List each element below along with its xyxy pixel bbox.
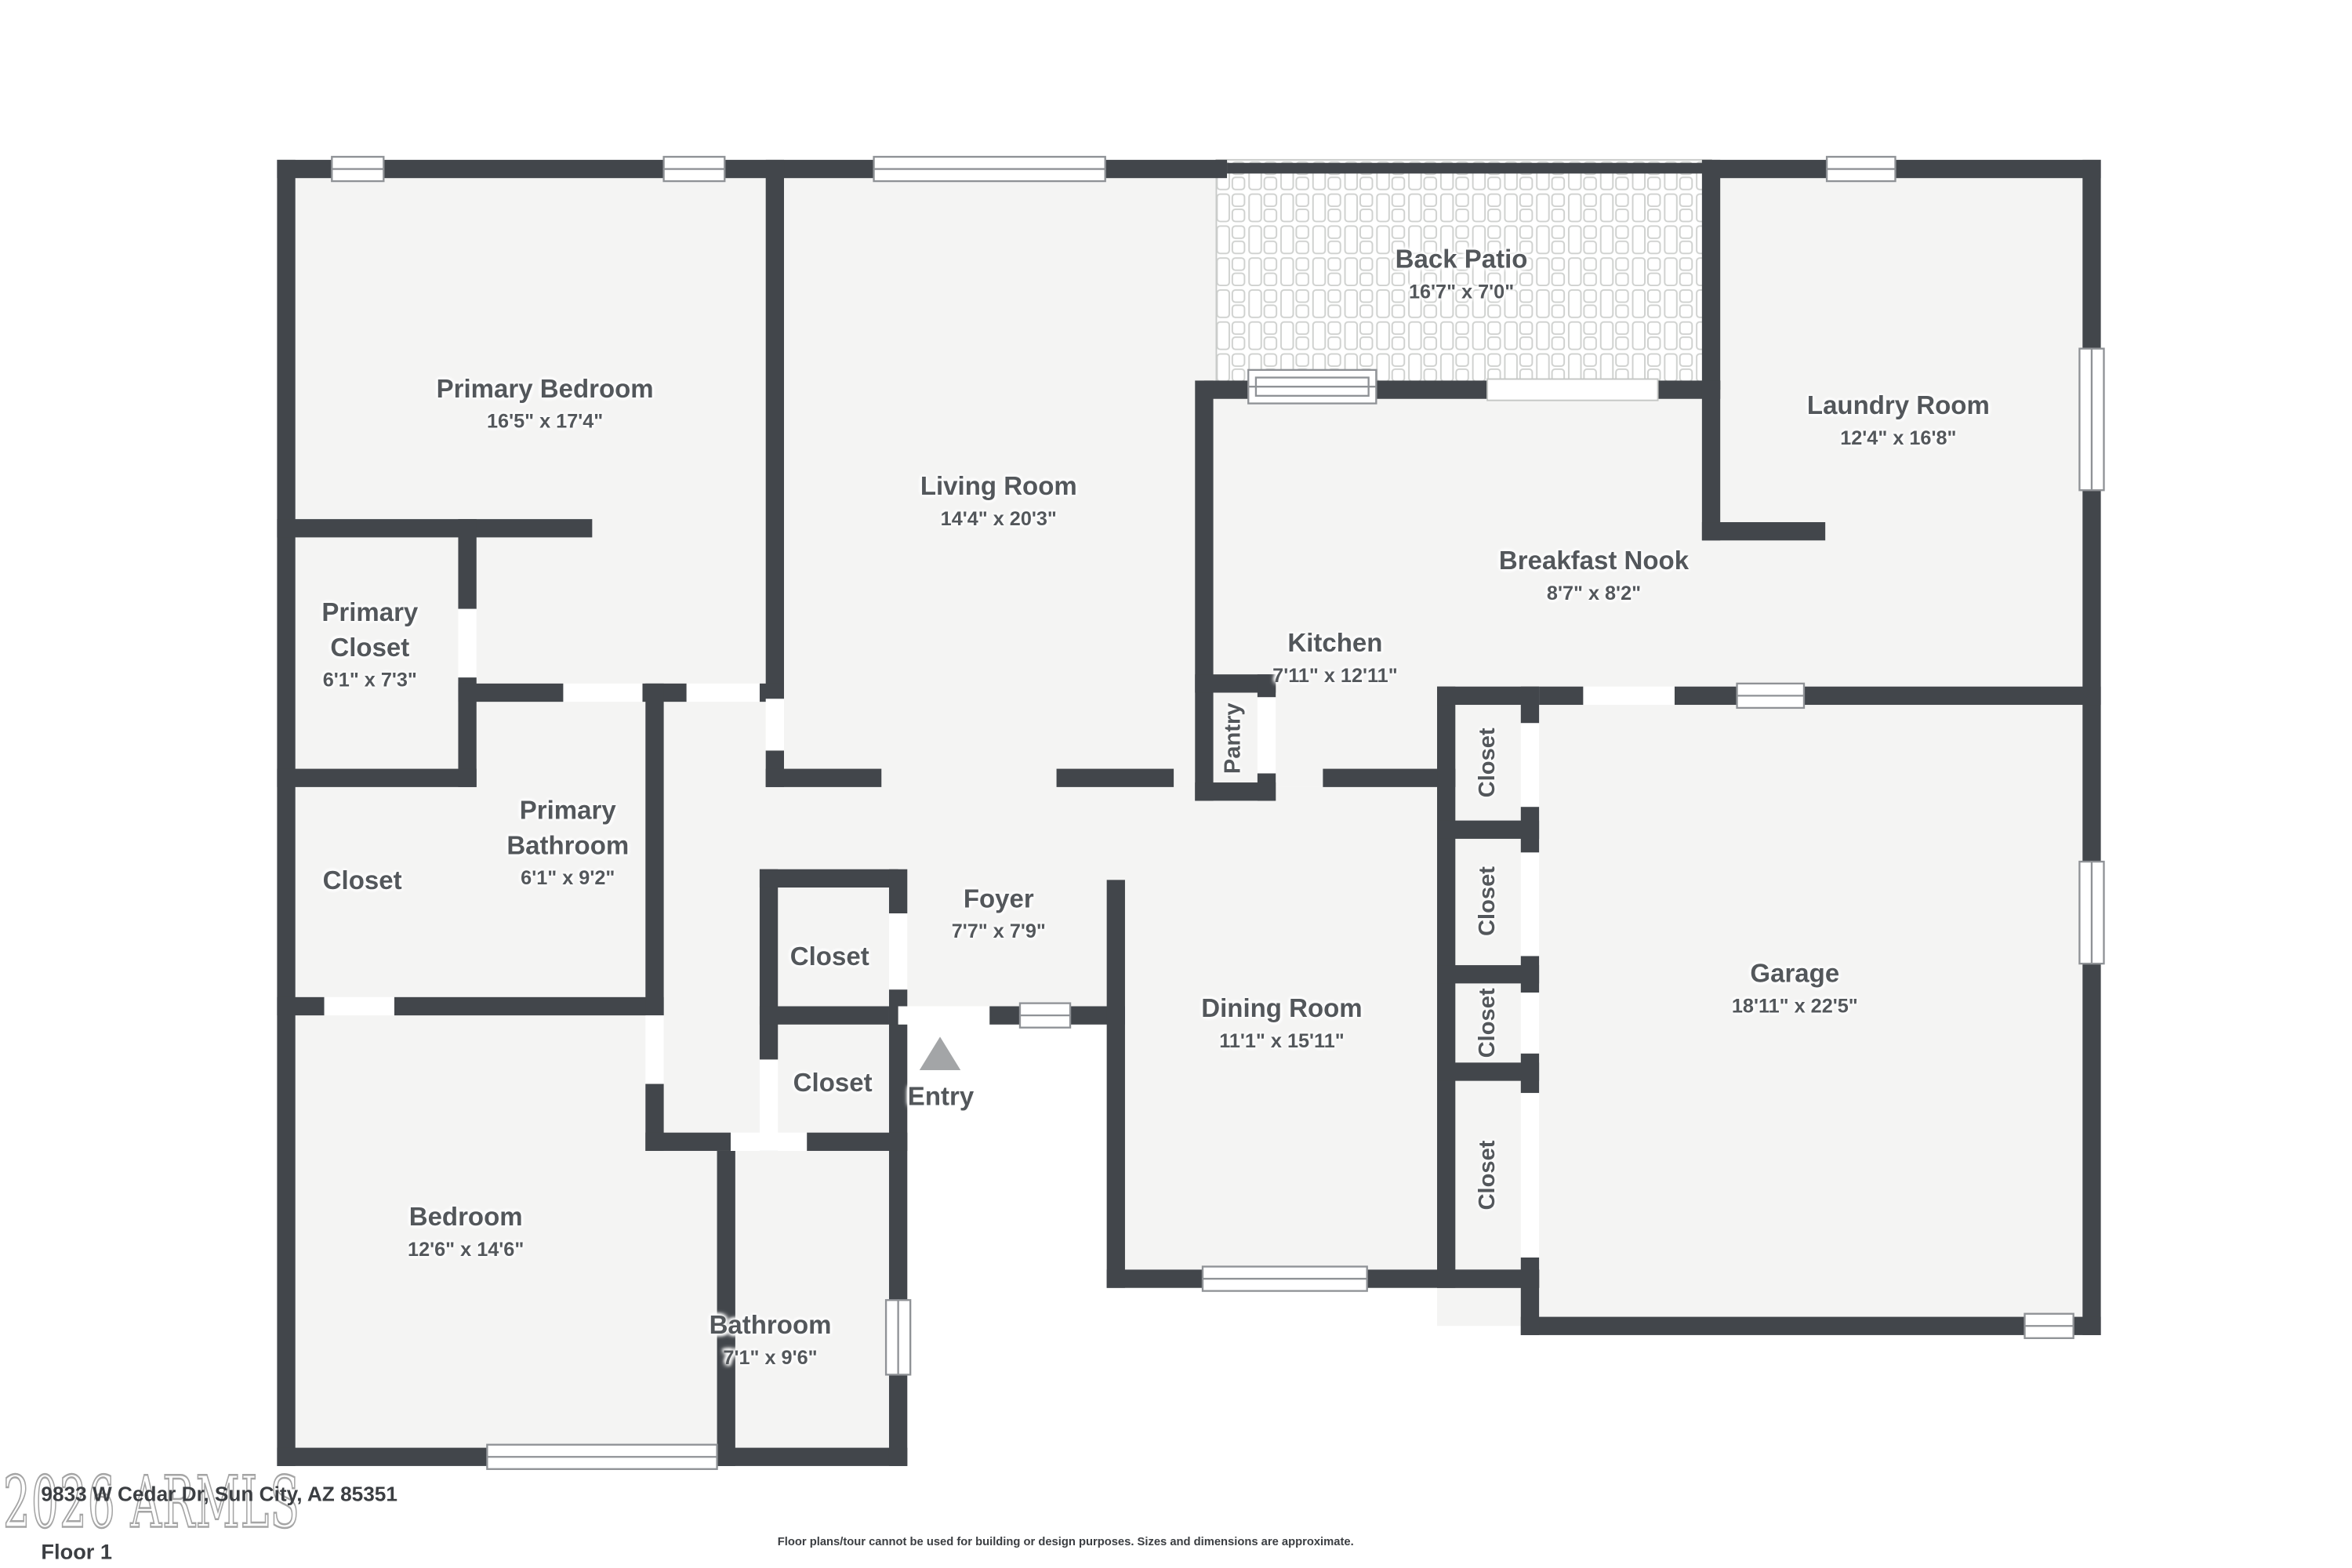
room-label-bathroom: Bathroom 7'1" x 9'6" [710,1309,832,1371]
room-label-foyer: Foyer 7'7" x 7'9" [952,883,1046,945]
patio-slider-door [1248,370,1376,404]
room-label-pantry: Pantry [1220,702,1246,774]
room-label-garage: Garage 18'11" x 22'5" [1732,957,1858,1019]
entry-arrow-icon [920,1036,960,1070]
room-label-closet-col-1: Closet [1475,728,1501,797]
floor-plan-drawing [0,0,2352,1568]
floor-plan: Primary Bedroom 16'5" x 17'4" Living Roo… [0,0,2352,1568]
room-label-dining-room: Dining Room 11'1" x 15'11" [1201,993,1362,1054]
room-label-primary-bedroom: Primary Bedroom 16'5" x 17'4" [437,373,654,435]
room-label-closet-left: Closet [323,865,402,900]
property-address: 9833 W Cedar Dr, Sun City, AZ 85351 [41,1483,397,1505]
room-label-primary-closet: Primary Closet 6'1" x 7'3" [300,597,441,693]
room-label-kitchen: Kitchen 7'11" x 12'11" [1272,627,1397,689]
room-label-closet-col-4: Closet [1475,1141,1501,1210]
room-label-closet-foyer-bottom: Closet [793,1067,873,1102]
room-label-entry: Entry [908,1081,974,1116]
room-label-closet-foyer-top: Closet [790,941,869,976]
room-label-living-room: Living Room 14'4" x 20'3" [920,470,1077,532]
disclaimer-text: Floor plans/tour cannot be used for buil… [778,1534,1354,1548]
room-label-closet-col-2: Closet [1475,866,1501,936]
room-label-back-patio: Back Patio 16'7" x 7'0" [1396,244,1528,306]
room-label-breakfast-nook: Breakfast Nook 8'7" x 8'2" [1499,545,1689,607]
floor-label: Floor 1 [41,1539,112,1563]
room-label-primary-bathroom: Primary Bathroom 6'1" x 9'2" [485,795,650,891]
room-label-laundry-room: Laundry Room 12'4" x 16'8" [1807,390,1990,452]
room-label-bedroom: Bedroom 12'6" x 14'6" [408,1201,524,1263]
room-label-closet-col-3: Closet [1475,988,1501,1058]
